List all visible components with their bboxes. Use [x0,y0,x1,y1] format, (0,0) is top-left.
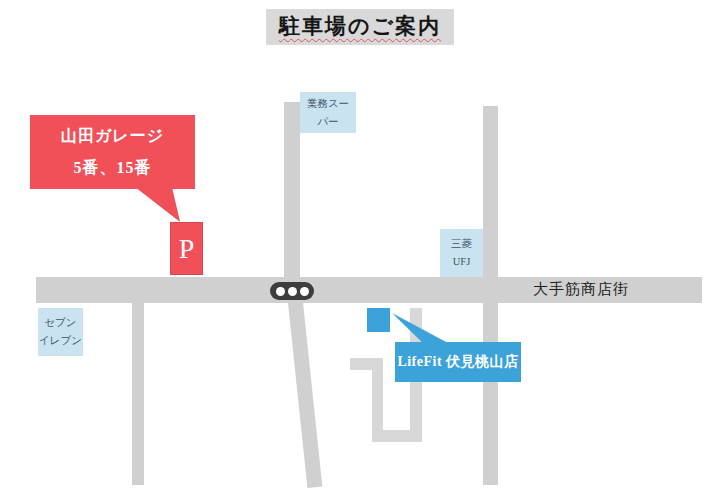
landmark-seven-eleven-line1: セブン [44,314,76,332]
parking-marker-icon: P [170,222,203,275]
page-title: 駐車場のご案内 [266,9,454,45]
road-vertical-right [483,106,498,485]
store-callout: LifeFit 伏見桃山店 [395,342,521,382]
parking-guide-map: 駐車場のご案内 大手筋商店街 業務スー パー 三菱 UFJ セブン イレブン 山… [0,0,720,495]
traffic-light-dot [288,287,297,296]
landmark-gyomu-super-line1: 業務スー [307,95,349,113]
parking-callout-spaces: 5番、15番 [74,158,152,179]
road-diagonal-lower-center [288,301,322,488]
landmark-seven-eleven-line2: イレブン [39,332,82,350]
landmark-mitsubishi-ufj: 三菱 UFJ [440,229,483,277]
road-vertical-left-lower [132,303,144,485]
road-vertical-center-upper [284,102,300,277]
landmark-mitsubishi-ufj-line2: UFJ [453,253,471,271]
store-callout-label: LifeFit 伏見桃山店 [397,353,518,371]
store-location-marker [367,308,390,332]
traffic-light-icon [270,282,314,300]
traffic-light-dot [300,287,309,296]
parking-callout-name: 山田ガレージ [61,126,164,147]
page-title-text: 駐車場のご案内 [279,14,441,38]
parking-callout: 山田ガレージ 5番、15番 [30,115,195,189]
landmark-gyomu-super: 業務スー パー [300,92,356,133]
parking-marker-letter: P [179,233,195,265]
landmark-mitsubishi-ufj-line1: 三菱 [451,235,472,253]
landmark-seven-eleven: セブン イレブン [38,308,83,356]
parking-callout-tail [135,187,183,222]
street-name-label: 大手筋商店街 [533,280,629,299]
landmark-gyomu-super-line2: パー [317,113,338,131]
traffic-light-dot [276,287,285,296]
